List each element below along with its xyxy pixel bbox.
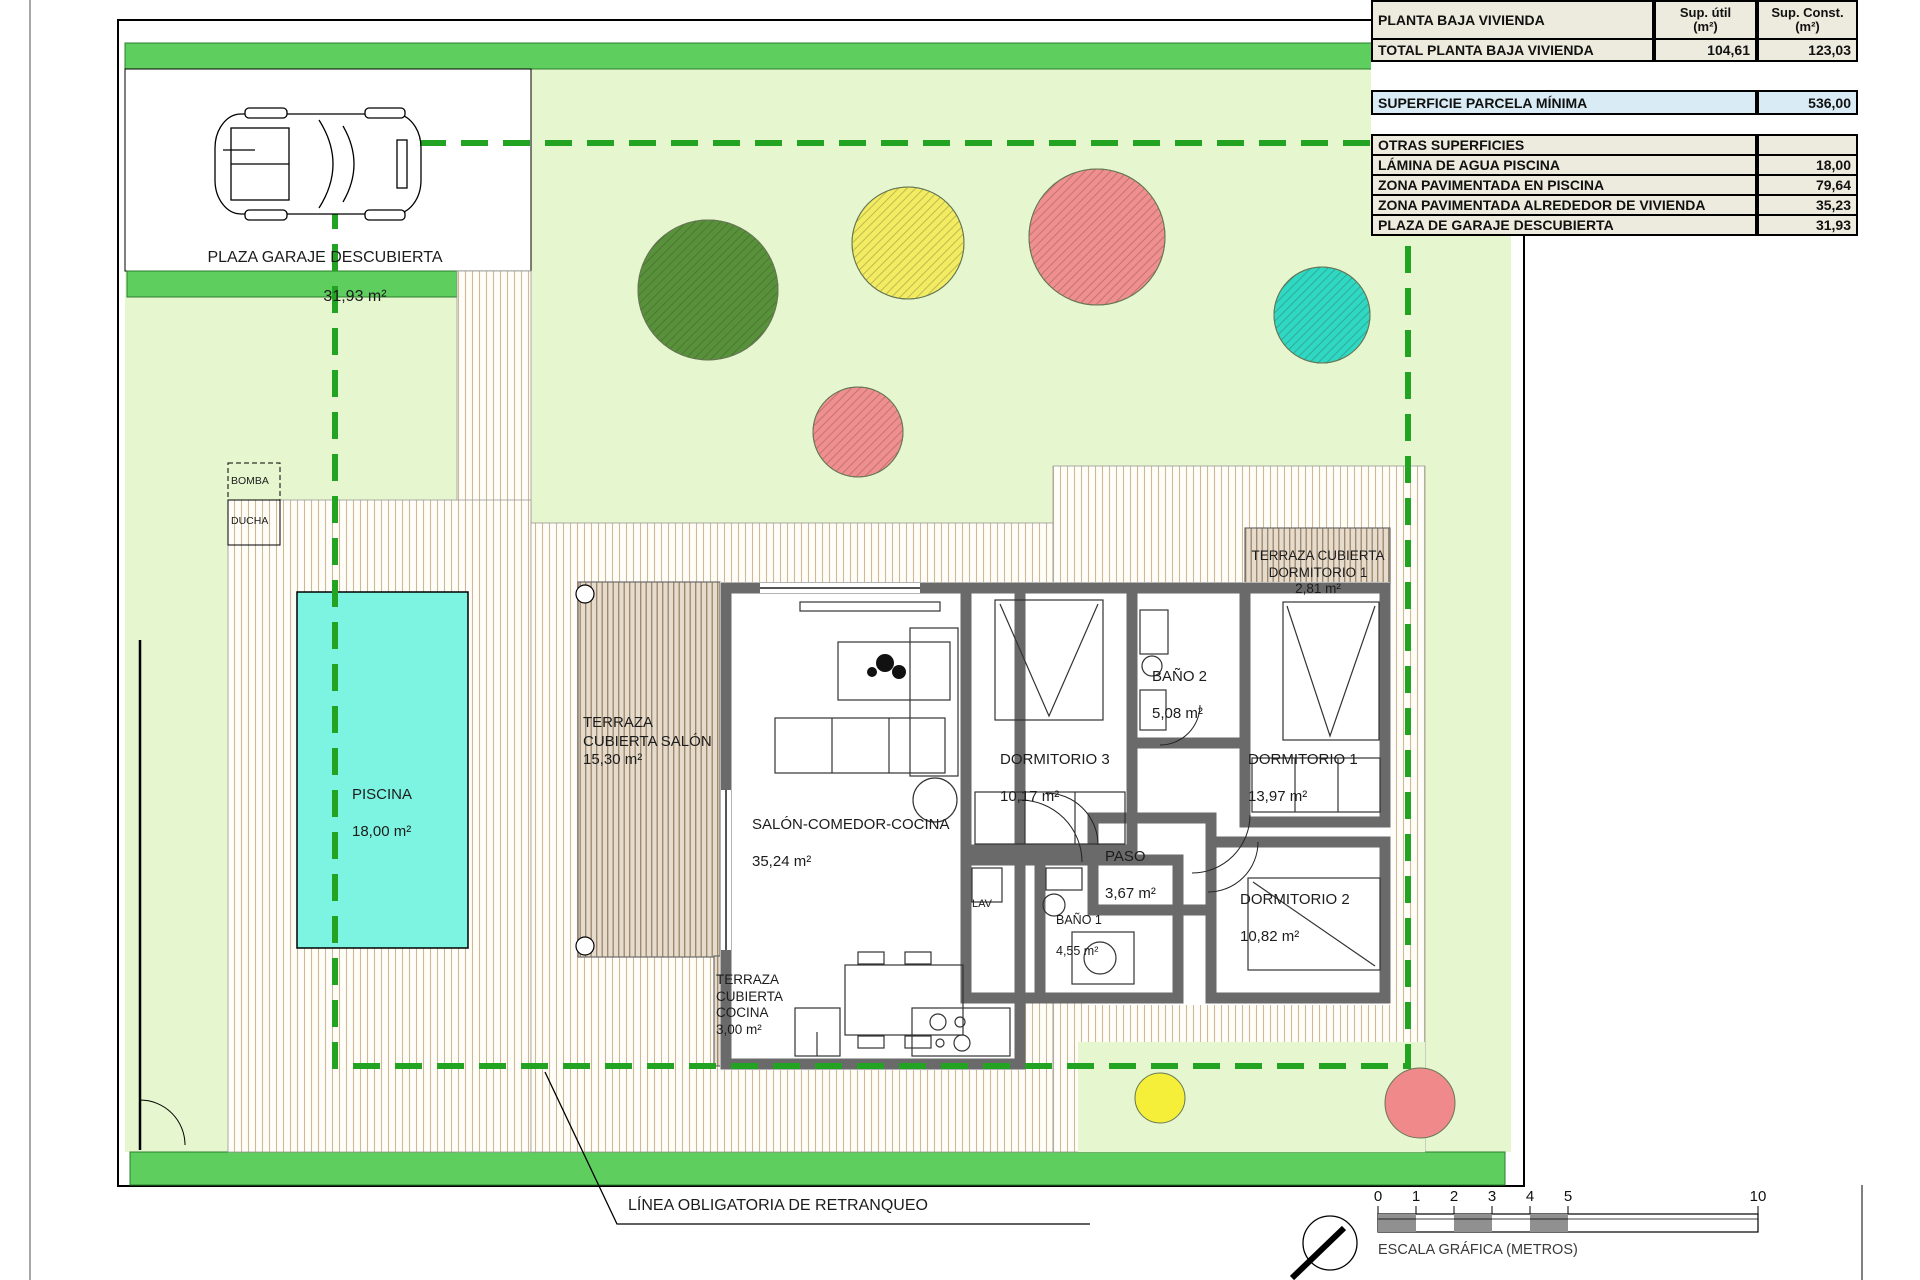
shrub-yellow <box>1135 1073 1185 1123</box>
pool-label: PISCINA 18,00 m² <box>352 768 412 859</box>
terrace-column <box>576 937 594 955</box>
table-gap <box>1371 62 1858 90</box>
area-summary-table: PLANTA BAJA VIVIENDA Sup. útil (m²) Sup.… <box>1371 0 1858 236</box>
scale-tick-4: 4 <box>1526 1188 1534 1205</box>
table-header-sup-const: Sup. Const. (m²) <box>1757 0 1858 40</box>
lav-label: LAV <box>972 898 992 911</box>
scale-tick-10: 10 <box>1750 1188 1767 1205</box>
paso-label: PASO 3,67 m² <box>1105 830 1156 921</box>
north-arrow <box>1292 1216 1357 1278</box>
table-header-sup-util: Sup. útil (m²) <box>1654 0 1757 40</box>
scale-ticks <box>1378 1206 1758 1214</box>
dormitorio3-label: DORMITORIO 3 10,17 m² <box>1000 733 1110 824</box>
terrace-dormitorio1-label: TERRAZA CUBIERTA DORMITORIO 1 2,81 m² <box>1243 532 1393 614</box>
setback-label: LÍNEA OBLIGATORIA DE RETRANQUEO <box>628 1196 928 1216</box>
table-header-row: PLANTA BAJA VIVIENDA Sup. útil (m²) Sup.… <box>1371 0 1858 40</box>
otras-title-row: OTRAS SUPERFICIES <box>1371 134 1858 156</box>
parcela-row: SUPERFICIE PARCELA MÍNIMA 536,00 <box>1371 90 1858 115</box>
shower-label: DUCHA <box>231 515 268 528</box>
terrace-salon-label: TERRAZA CUBIERTA SALÓN 15,30 m² <box>583 696 723 787</box>
table-total-row: TOTAL PLANTA BAJA VIVIENDA 104,61 123,03 <box>1371 38 1858 62</box>
terrace-cocina-label: TERRAZA CUBIERTA COCINA 3,00 m² <box>716 956 802 1055</box>
table-header-title: PLANTA BAJA VIVIENDA <box>1371 0 1654 40</box>
scale-tick-3: 3 <box>1488 1188 1496 1205</box>
car-icon <box>215 108 421 220</box>
salon-label: SALÓN-COMEDOR-COCINA 35,24 m² <box>752 798 982 889</box>
pump-label: BOMBA <box>231 475 269 488</box>
table-gap <box>1371 115 1858 134</box>
bano2-label: BAÑO 2 5,08 m² <box>1152 650 1207 741</box>
floor-plan-sheet: PLAZA GARAJE DESCUBIERTA 31,93 m² BOMBA … <box>0 0 1920 1280</box>
terrace-column <box>576 585 594 603</box>
scale-tick-2: 2 <box>1450 1188 1458 1205</box>
dormitorio2-label: DORMITORIO 2 10,82 m² <box>1240 873 1350 964</box>
shrub-salmon <box>1385 1068 1455 1138</box>
scale-bar <box>1378 1206 1758 1232</box>
bano1-label: BAÑO 1 4,55 m² <box>1056 898 1102 974</box>
otras-row: PLAZA DE GARAJE DESCUBIERTA 31,93 <box>1371 214 1858 236</box>
otras-row: LÁMINA DE AGUA PISCINA 18,00 <box>1371 154 1858 176</box>
otras-row: ZONA PAVIMENTADA ALREDEDOR DE VIVIENDA 3… <box>1371 194 1858 216</box>
scale-tick-0: 0 <box>1374 1188 1382 1205</box>
garage-label: PLAZA GARAJE DESCUBIERTA 31,93 m² <box>185 228 465 326</box>
scale-caption: ESCALA GRÁFICA (METROS) <box>1378 1242 1578 1260</box>
dormitorio1-label: DORMITORIO 1 13,97 m² <box>1248 733 1358 824</box>
top-hedge <box>125 43 1511 69</box>
scale-tick-1: 1 <box>1412 1188 1420 1205</box>
bottom-hedge <box>130 1152 1505 1185</box>
rear-garden-patch <box>1078 1042 1425 1152</box>
scale-tick-5: 5 <box>1564 1188 1572 1205</box>
otras-row: ZONA PAVIMENTADA EN PISCINA 79,64 <box>1371 174 1858 196</box>
